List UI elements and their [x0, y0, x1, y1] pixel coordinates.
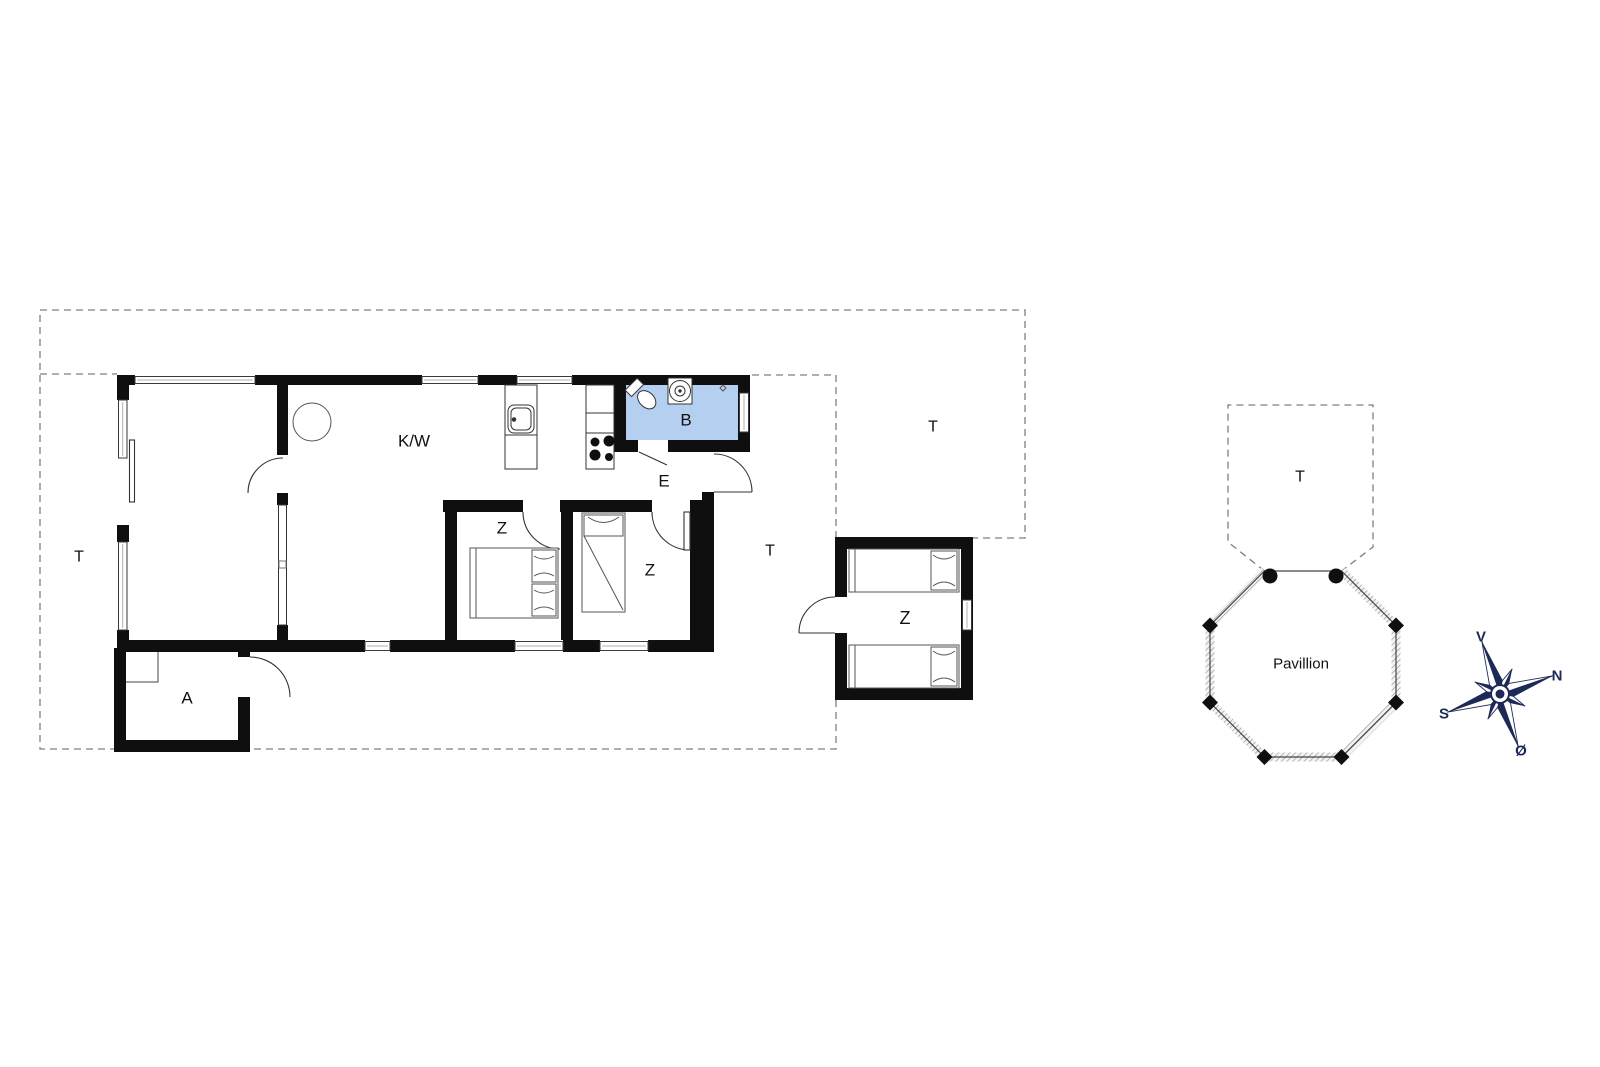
storage-annex: [114, 648, 290, 752]
post-icon: [1329, 569, 1344, 584]
door-leaf-bathroom: [639, 452, 667, 465]
bathroom-label: B: [680, 411, 691, 430]
pavilion-structure: [1202, 405, 1404, 765]
compass-north-label: N: [1552, 668, 1563, 685]
single-bed-icon: [849, 645, 959, 688]
boundary-inner-step: [750, 375, 836, 538]
terrace-pavilion-label: T: [1295, 469, 1305, 486]
terrace-east-label: T: [765, 543, 775, 560]
door-leaf-bedroom2: [684, 512, 690, 550]
entry-label: E: [658, 472, 669, 491]
annex-door: [799, 597, 835, 633]
compass-rose: V N S Ø: [1429, 623, 1571, 765]
terrace-top-right-label: T: [928, 419, 938, 436]
door-arc-storage: [250, 657, 290, 697]
round-table-icon: [293, 403, 331, 441]
floorplan-canvas: V N S Ø K/W B E Z Z Z A Pavillion T T T …: [0, 0, 1600, 1067]
floorplan-svg: V N S Ø K/W B E Z Z Z A Pavillion T T T …: [0, 0, 1600, 1067]
double-bed-icon: [470, 548, 558, 618]
washbasin-icon: [668, 378, 692, 404]
compass-east-label: Ø: [1515, 743, 1527, 760]
pavilion-label: Pavillion: [1273, 656, 1329, 673]
compass-south-label: S: [1439, 706, 1449, 723]
door-arc-partition: [248, 458, 283, 493]
faucet-icon: [512, 418, 516, 422]
single-bed-icon: [582, 513, 625, 612]
closet-icon: [126, 652, 158, 682]
door-arc-bedroom1: [523, 512, 560, 549]
door-arc-annex: [799, 597, 835, 633]
bedroom2-label: Z: [645, 561, 655, 580]
door-leaf-terrace: [130, 440, 135, 502]
terrace-left-label: T: [74, 549, 84, 566]
bedroom-furniture: [470, 513, 625, 618]
annex-bedroom-label: Z: [900, 608, 911, 628]
pavilion-terrace-boundary: [1228, 405, 1373, 571]
doors: [130, 440, 753, 550]
compass-west-label: V: [1476, 629, 1486, 646]
single-bed-icon: [849, 549, 959, 592]
glass-partition: [279, 505, 287, 625]
annex-room-label: A: [181, 689, 193, 708]
door-arc-entrance: [714, 454, 752, 492]
annex-house: [799, 537, 973, 700]
main-house: [117, 375, 752, 652]
kitchen-living-label: K/W: [398, 432, 430, 451]
bedroom1-label: Z: [497, 519, 507, 538]
kitchen: [293, 385, 615, 469]
post-icon: [1263, 569, 1278, 584]
